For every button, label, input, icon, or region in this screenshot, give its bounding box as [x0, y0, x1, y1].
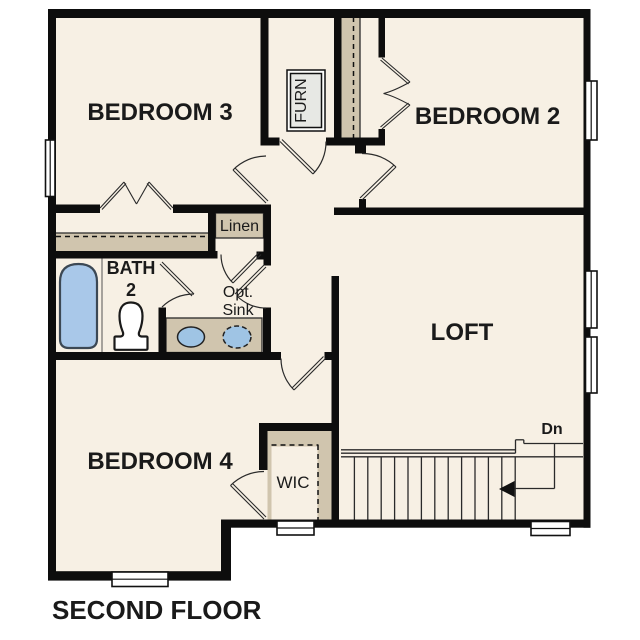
svg-text:LOFT: LOFT: [431, 319, 494, 346]
svg-text:BEDROOM 4: BEDROOM 4: [87, 448, 233, 475]
svg-text:Dn: Dn: [541, 421, 562, 438]
svg-text:2: 2: [126, 280, 136, 300]
svg-text:BATH: BATH: [107, 258, 156, 278]
svg-text:BEDROOM 2: BEDROOM 2: [415, 103, 560, 130]
svg-text:Opt.: Opt.: [223, 284, 253, 301]
svg-text:FURN: FURN: [293, 78, 310, 122]
svg-text:SECOND FLOOR: SECOND FLOOR: [52, 595, 262, 625]
svg-text:Linen: Linen: [220, 218, 259, 235]
svg-text:Sink: Sink: [222, 302, 254, 319]
svg-text:BEDROOM 3: BEDROOM 3: [87, 99, 232, 126]
svg-text:WIC: WIC: [276, 473, 309, 492]
